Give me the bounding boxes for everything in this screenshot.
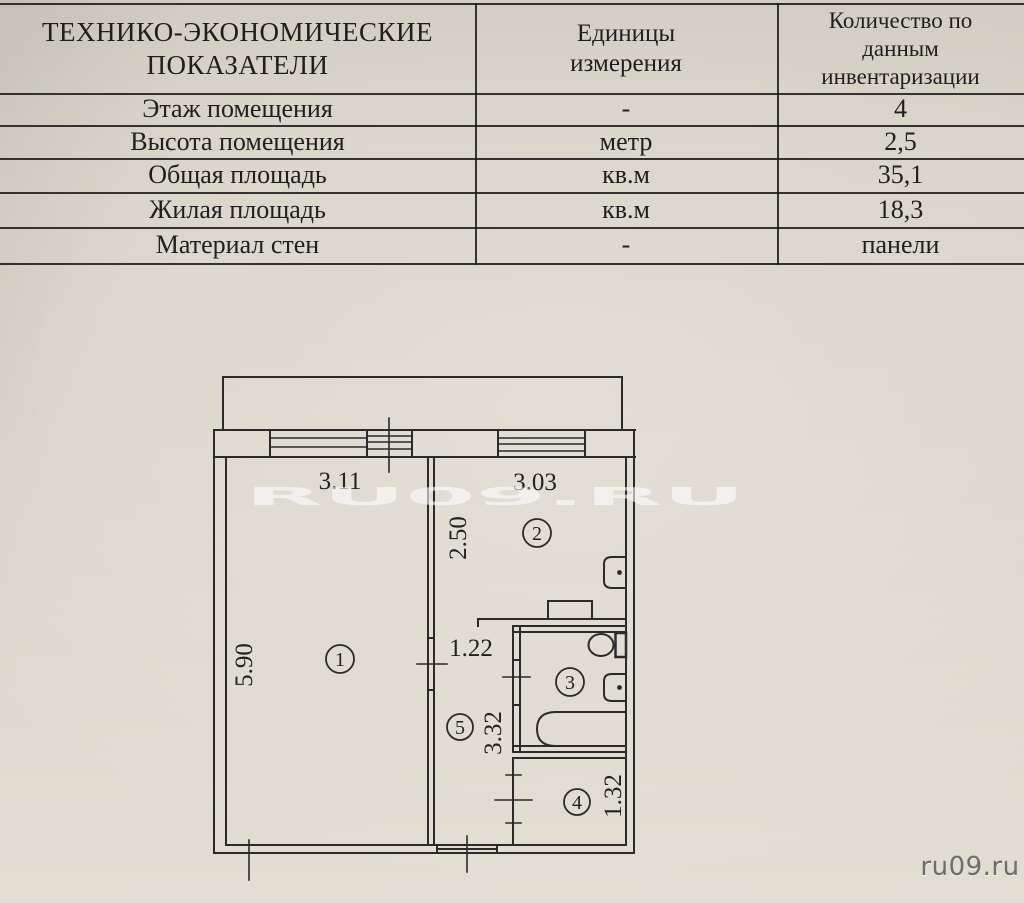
kitchen-hall-wall <box>478 601 626 626</box>
room-number-labels: 1 2 3 4 5 <box>326 519 590 815</box>
dim-kitchen-depth: 2.50 <box>445 516 472 560</box>
room1-number: 1 <box>335 649 345 671</box>
toilet-bowl-icon <box>589 634 614 656</box>
kitchen-sink-icon <box>604 557 626 588</box>
window-glazing-lines <box>270 436 585 451</box>
room4-number: 4 <box>572 792 582 814</box>
room2-number: 2 <box>532 523 542 545</box>
walls <box>214 377 635 853</box>
room3-number: 3 <box>565 672 575 694</box>
scanned-tech-passport-page: ТЕХНИКО-ЭКОНОМИЧЕСКИЕ ПОКАЗАТЕЛИ Единицы… <box>0 0 1024 903</box>
kitchen-sink-tap-icon <box>617 570 622 575</box>
room5-number: 5 <box>455 717 465 739</box>
balcony-outline <box>223 377 622 429</box>
bathroom-sink-icon <box>604 674 626 701</box>
bathroom-sink-tap-icon <box>617 685 622 690</box>
dim-room4-depth: 1.32 <box>600 774 627 818</box>
toilet-tank-icon <box>616 633 627 657</box>
bathroom-top-wall <box>513 626 626 632</box>
bathroom-left-wall <box>513 626 520 752</box>
bathtub-icon <box>537 712 626 746</box>
dim-hall-length: 3.32 <box>480 711 507 755</box>
site-brand-label: ru09.ru <box>920 852 1020 882</box>
dim-hall-width: 1.22 <box>449 635 493 662</box>
floor-plan-drawing: 1 2 3 4 5 3.11 3.03 2.50 5.90 1.22 3.32 … <box>0 0 1024 903</box>
watermark-text: RU09.RU <box>245 482 745 511</box>
dim-room1-length: 5.90 <box>231 643 258 687</box>
fixtures <box>537 557 626 746</box>
room1-hall-wall <box>428 457 434 845</box>
